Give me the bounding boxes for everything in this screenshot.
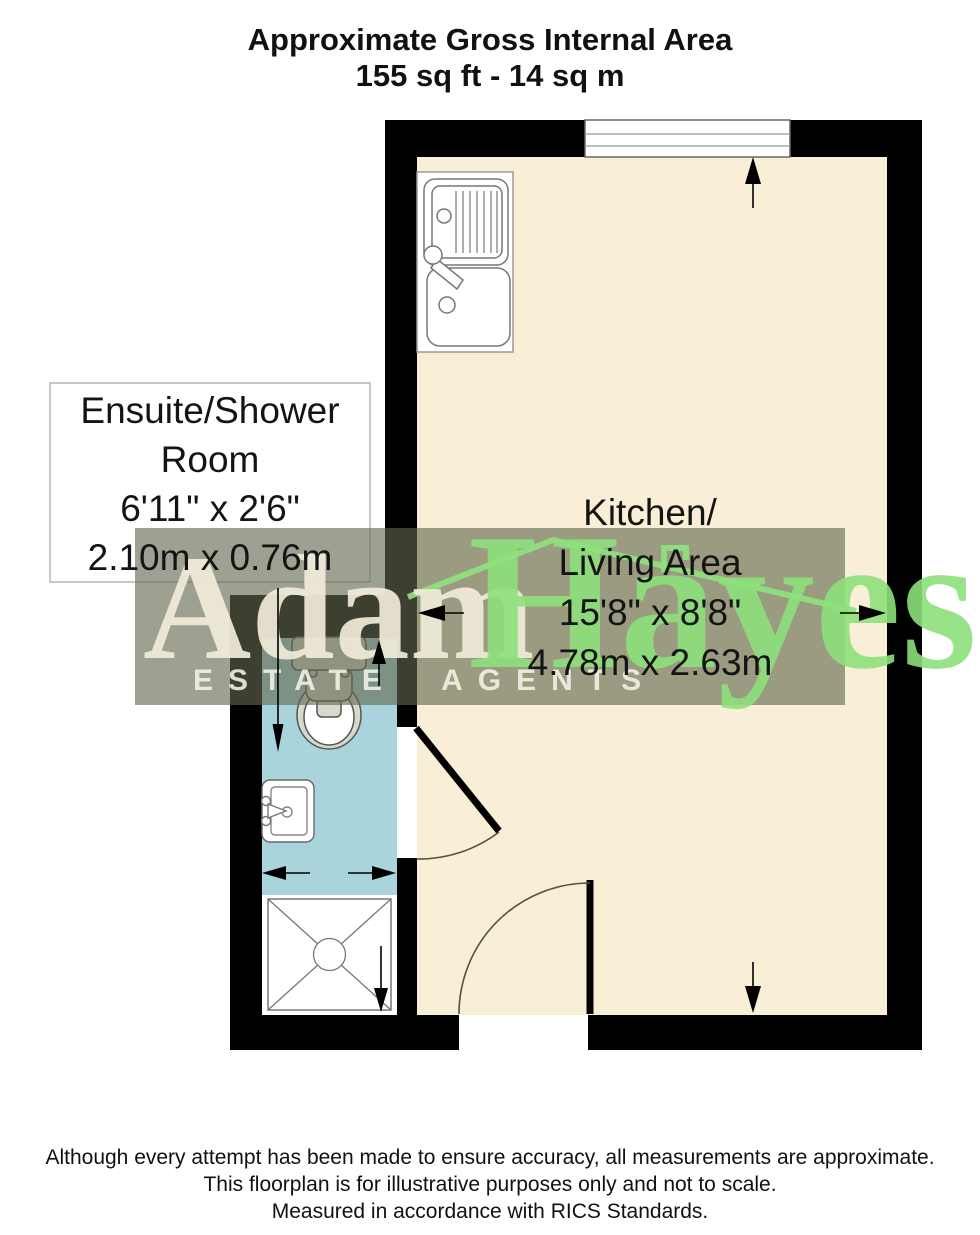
ensuite-dimension-arrows (262, 640, 396, 1012)
room-name: Ensuite/Shower (50, 386, 370, 435)
arrow-down-icon (273, 724, 284, 752)
room-dims-imperial: 6'11" x 2'6" (50, 484, 370, 533)
room-name: Living Area (450, 538, 850, 588)
floorplan-page: Adam Hayes ESTATE AGENTS (0, 0, 980, 1235)
ensuite-leader-arrow (273, 588, 284, 752)
room-name: Room (50, 435, 370, 484)
room-dims-metric: 2.10m x 0.76m (50, 533, 370, 582)
arrow-right-icon (372, 866, 396, 880)
kitchen-room-label: Kitchen/ Living Area 15'8" x 8'8" 4.78m … (450, 488, 850, 688)
disclaimer-line-3: Measured in accordance with RICS Standar… (0, 1198, 980, 1225)
entrance-door-swing (459, 880, 590, 1014)
arrow-right-icon (859, 605, 886, 621)
disclaimer-line-2: This floorplan is for illustrative purpo… (0, 1171, 980, 1198)
arrow-left-icon (418, 605, 445, 621)
ensuite-room-label: Ensuite/Shower Room 6'11" x 2'6" 2.10m x… (50, 386, 370, 582)
title-line-2: 155 sq ft - 14 sq m (0, 58, 980, 94)
arrow-up-icon (745, 157, 761, 184)
arrow-down-icon (374, 988, 388, 1012)
room-dims-metric: 4.78m x 2.63m (450, 638, 850, 688)
room-dims-imperial: 15'8" x 8'8" (450, 588, 850, 638)
arrow-up-icon (372, 640, 386, 664)
page-title: Approximate Gross Internal Area 155 sq f… (0, 22, 980, 94)
disclaimer-text: Although every attempt has been made to … (0, 1144, 980, 1225)
arrow-down-icon (745, 986, 761, 1013)
disclaimer-line-1: Although every attempt has been made to … (0, 1144, 980, 1171)
title-line-1: Approximate Gross Internal Area (0, 22, 980, 58)
room-name: Kitchen/ (450, 488, 850, 538)
arrow-left-icon (262, 866, 286, 880)
ensuite-door-swing (416, 728, 499, 859)
